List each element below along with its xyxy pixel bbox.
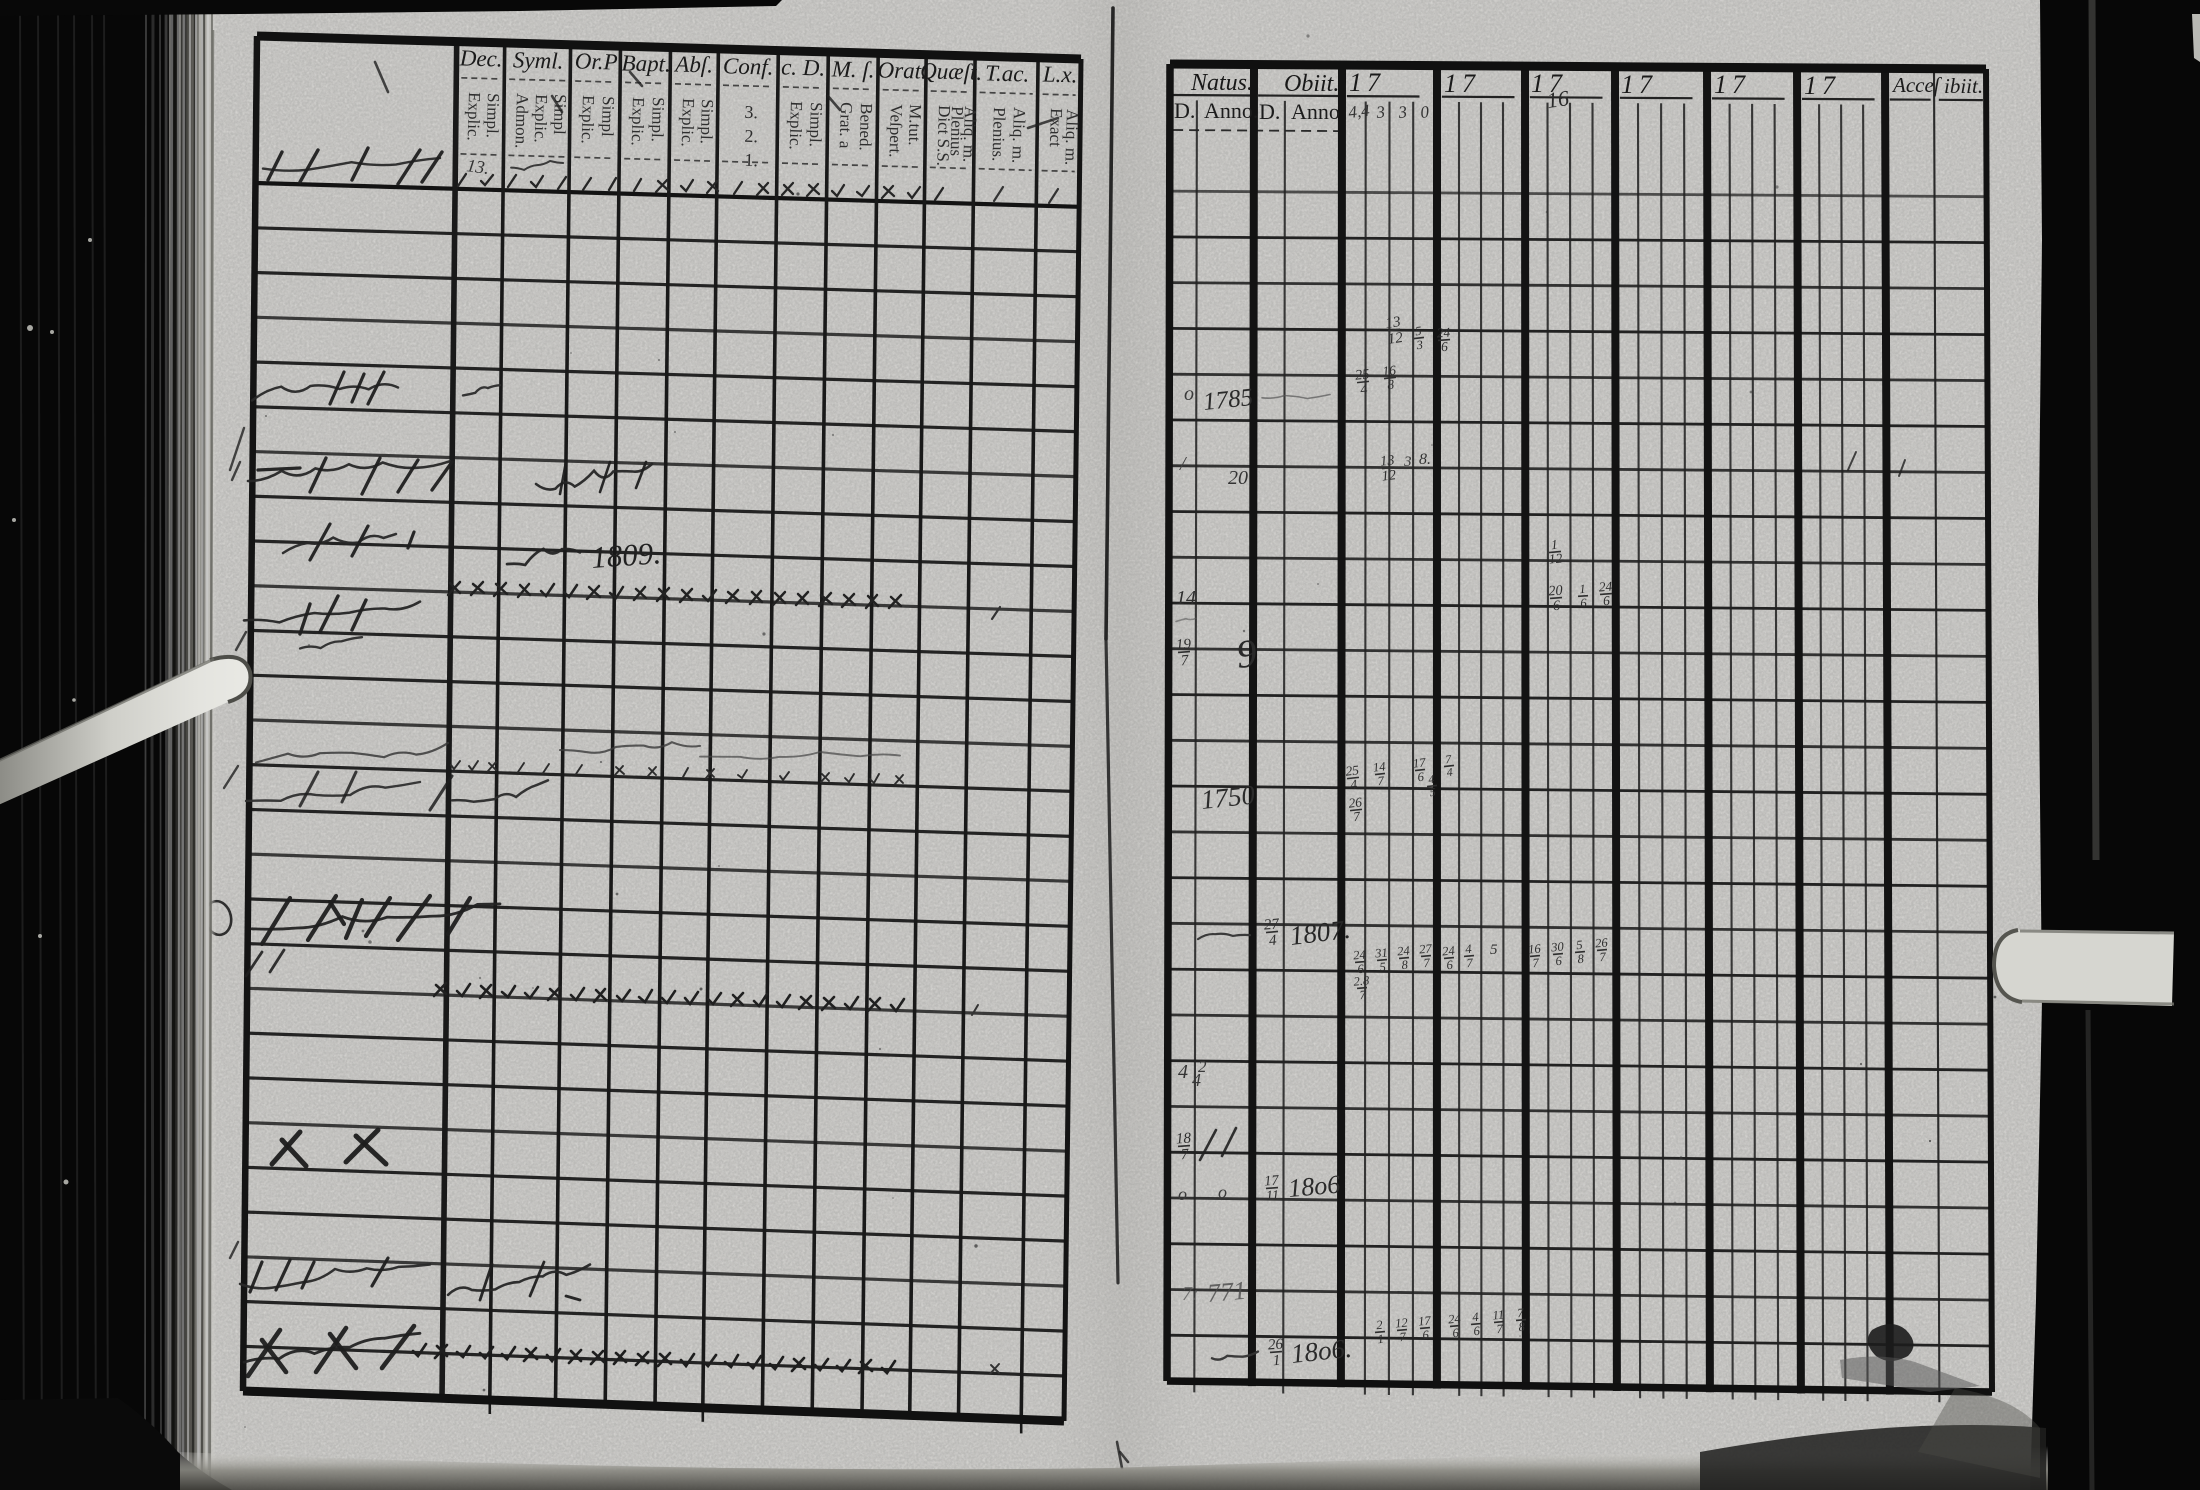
- svg-text:26: 26: [1595, 935, 1609, 950]
- svg-text:Aliq. m.: Aliq. m.: [959, 106, 980, 163]
- svg-text:16: 16: [1528, 941, 1542, 956]
- svg-text:Conf.: Conf.: [723, 53, 774, 79]
- svg-text:Aliq. m.: Aliq. m.: [1061, 109, 1082, 166]
- svg-text:5: 5: [1490, 942, 1498, 958]
- svg-text:2.: 2.: [744, 126, 758, 146]
- svg-text:1750: 1750: [1199, 779, 1256, 815]
- svg-text:5: 5: [1576, 938, 1583, 952]
- svg-text:4: 4: [1178, 1061, 1188, 1083]
- svg-text:1: 1: [1377, 1332, 1384, 1346]
- svg-text:o: o: [1184, 383, 1194, 405]
- svg-text:24: 24: [1442, 943, 1456, 958]
- svg-text:16: 16: [1545, 85, 1570, 113]
- svg-text:Bened.: Bened.: [856, 103, 876, 151]
- svg-text:Abſ.: Abſ.: [673, 51, 713, 77]
- svg-text:17: 17: [1804, 71, 1840, 100]
- svg-text:24: 24: [1353, 947, 1367, 962]
- svg-text:3.: 3.: [744, 102, 758, 122]
- svg-text:17: 17: [1444, 69, 1480, 98]
- svg-text:1809.: 1809.: [590, 535, 662, 575]
- svg-text:Syml.: Syml.: [513, 47, 564, 73]
- svg-text:M. ſ.: M. ſ.: [830, 56, 874, 82]
- svg-text:Explic.: Explic.: [531, 94, 551, 143]
- svg-text:M.tut.: M.tut.: [905, 104, 925, 146]
- svg-text:Aliq. m.: Aliq. m.: [1008, 107, 1029, 164]
- svg-text:18ο6.: 18ο6.: [1289, 1333, 1353, 1369]
- svg-text:Explic.: Explic.: [578, 95, 598, 144]
- svg-text:Simpl.: Simpl.: [648, 97, 668, 142]
- svg-text:7:: 7:: [1182, 1283, 1199, 1305]
- svg-text:2.8: 2.8: [1353, 973, 1371, 988]
- svg-text:Plenius.: Plenius.: [988, 107, 1009, 162]
- svg-text:L.x.: L.x.: [1042, 61, 1078, 87]
- svg-text:6: 6: [1441, 339, 1449, 354]
- svg-text:5: 5: [1379, 960, 1386, 974]
- svg-text:3: 3: [1374, 102, 1385, 122]
- svg-text:30: 30: [1550, 939, 1565, 954]
- svg-text:14: 14: [1176, 587, 1196, 609]
- svg-text:17: 17: [1714, 70, 1750, 99]
- svg-text:24: 24: [1448, 1311, 1462, 1326]
- svg-text:Dec.: Dec.: [458, 45, 502, 71]
- svg-text:11: 11: [1492, 1308, 1505, 1323]
- svg-text:3: 3: [1396, 102, 1407, 122]
- svg-text:14: 14: [1372, 759, 1387, 774]
- svg-text:Obiit.: Obiit.: [1284, 71, 1339, 97]
- svg-text:12: 12: [1381, 467, 1397, 484]
- svg-text:12: 12: [1387, 330, 1405, 348]
- svg-text:o: o: [1178, 1184, 1187, 1204]
- svg-text:31: 31: [1374, 946, 1389, 961]
- svg-text:Acceſ: Acceſ: [1891, 73, 1943, 97]
- svg-text:Explic.: Explic.: [786, 101, 806, 150]
- svg-text:Simpl: Simpl: [550, 94, 570, 135]
- svg-text:Explic.: Explic.: [678, 98, 698, 147]
- svg-text:17: 17: [1418, 1313, 1432, 1328]
- svg-text:Simpl.: Simpl.: [806, 102, 826, 147]
- svg-text:17: 17: [1349, 68, 1385, 97]
- svg-text:Bapt.: Bapt.: [621, 50, 671, 76]
- svg-text:Explic.: Explic.: [464, 92, 484, 141]
- svg-text:1: 1: [1272, 1353, 1281, 1369]
- svg-text:13.: 13.: [465, 155, 490, 178]
- svg-text:Veſpert.: Veſpert.: [886, 104, 906, 158]
- svg-text:Anno: Anno: [1291, 99, 1340, 124]
- svg-text:Admon.: Admon.: [511, 93, 532, 149]
- svg-text:17: 17: [1621, 70, 1657, 99]
- svg-text:12: 12: [1548, 550, 1563, 566]
- svg-text:Simpl: Simpl: [598, 96, 618, 137]
- svg-text:1.: 1.: [744, 150, 758, 170]
- svg-text:17: 17: [1412, 755, 1427, 770]
- svg-text:6: 6: [1603, 593, 1611, 608]
- svg-text:1785: 1785: [1202, 384, 1255, 416]
- svg-text:3.: 3.: [1403, 454, 1415, 470]
- svg-text:o: o: [1218, 1182, 1227, 1202]
- svg-text:Or.P: Or.P: [574, 48, 617, 74]
- svg-text:18o6: 18o6: [1287, 1170, 1341, 1203]
- svg-text:T.ac.: T.ac.: [985, 60, 1030, 86]
- svg-text:11: 11: [1265, 1188, 1279, 1205]
- svg-text:Natus.: Natus.: [1190, 70, 1253, 96]
- svg-text:ibiit.: ibiit.: [1944, 74, 1983, 98]
- svg-text:8.: 8.: [1419, 451, 1431, 468]
- svg-text:20: 20: [1228, 467, 1248, 489]
- svg-text:27: 27: [1419, 941, 1433, 956]
- svg-text:4,4: 4,4: [1347, 101, 1371, 122]
- svg-text:12: 12: [1395, 1315, 1409, 1330]
- svg-text:Quæſt.: Quæſt.: [920, 58, 983, 85]
- svg-text:D.: D.: [1174, 98, 1195, 123]
- svg-text:3: 3: [1415, 338, 1424, 353]
- svg-text:Explic.: Explic.: [628, 97, 648, 146]
- svg-text:771: 771: [1206, 1276, 1247, 1308]
- svg-text:Anno.: Anno.: [1204, 98, 1258, 123]
- svg-text:c. D.: c. D.: [781, 54, 826, 80]
- svg-text:1: 1: [1579, 582, 1586, 596]
- svg-text:27: 27: [1263, 916, 1281, 933]
- svg-text:24: 24: [1397, 943, 1411, 958]
- svg-text:D.: D.: [1259, 99, 1280, 124]
- svg-text:Simpl.: Simpl.: [697, 99, 717, 144]
- svg-text:Simpl.: Simpl.: [483, 93, 503, 138]
- svg-text:2: 2: [1198, 1057, 1207, 1076]
